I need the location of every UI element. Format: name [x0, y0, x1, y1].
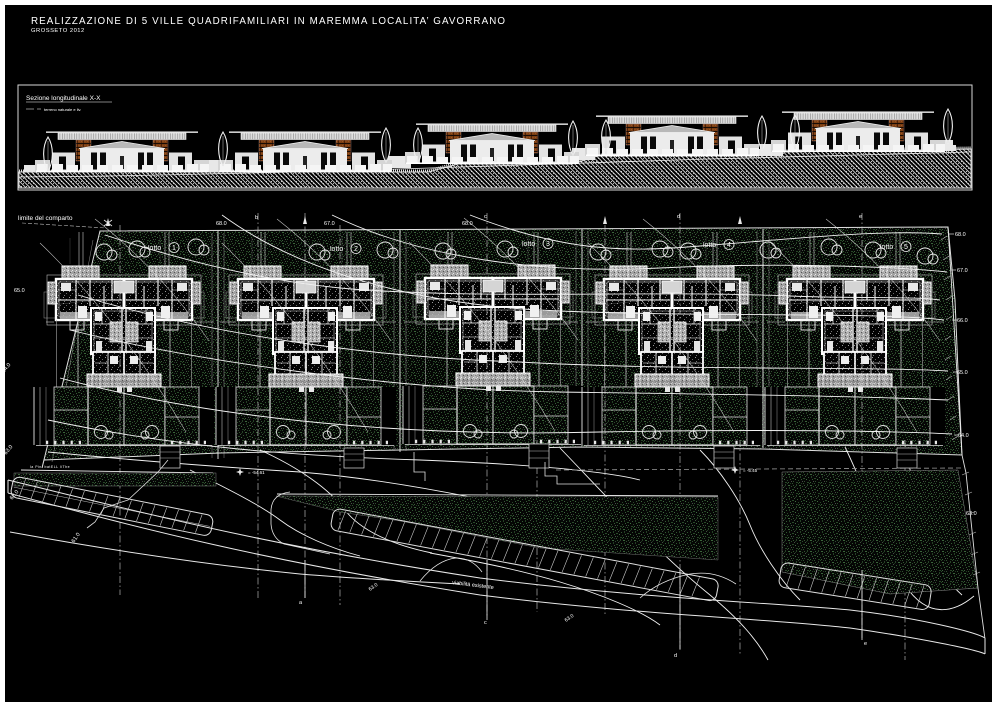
svg-text:terreno naturale e liv.: terreno naturale e liv. — [44, 107, 81, 112]
svg-text:67.0: 67.0 — [957, 268, 968, 274]
svg-text:4: 4 — [727, 242, 731, 249]
svg-text:b: b — [255, 215, 258, 221]
svg-text:68.0: 68.0 — [955, 232, 966, 238]
svg-text:65.0: 65.0 — [957, 370, 968, 376]
svg-text:d: d — [677, 214, 680, 220]
svg-text:63.0: 63.0 — [966, 511, 977, 517]
svg-text:REALIZZAZIONE DI 5 VILLE QUADR: REALIZZAZIONE DI 5 VILLE QUADRIFAMILIARI… — [31, 16, 506, 27]
svg-text:65.0: 65.0 — [14, 288, 25, 294]
svg-text:lotto: lotto — [880, 244, 893, 251]
svg-text:66.0: 66.0 — [957, 318, 968, 324]
svg-text:5: 5 — [904, 244, 908, 251]
svg-text:c: c — [484, 214, 487, 220]
svg-text:la Pini batELL liThe: la Pini batELL liThe — [30, 465, 70, 469]
svg-text:2: 2 — [354, 246, 358, 253]
svg-text:c: c — [484, 620, 487, 626]
svg-text:d: d — [674, 653, 677, 659]
svg-text:= -5.45: = -5.45 — [743, 468, 758, 473]
svg-text:limite del comparto: limite del comparto — [18, 215, 73, 222]
svg-text:3: 3 — [546, 241, 550, 248]
svg-text:68.0: 68.0 — [216, 221, 227, 227]
svg-text:e: e — [864, 641, 867, 647]
svg-text:e: e — [859, 214, 862, 220]
svg-text:1: 1 — [172, 245, 176, 252]
svg-text:= -54.61: = -54.61 — [248, 470, 265, 475]
svg-text:Sezione longitudinale X-X: Sezione longitudinale X-X — [26, 95, 101, 102]
svg-text:lotto: lotto — [522, 241, 535, 248]
svg-text:64.0: 64.0 — [958, 433, 969, 439]
svg-text:lotto: lotto — [330, 246, 343, 253]
svg-text:67.0: 67.0 — [324, 221, 335, 227]
svg-text:GROSSETO 2012: GROSSETO 2012 — [31, 28, 85, 34]
